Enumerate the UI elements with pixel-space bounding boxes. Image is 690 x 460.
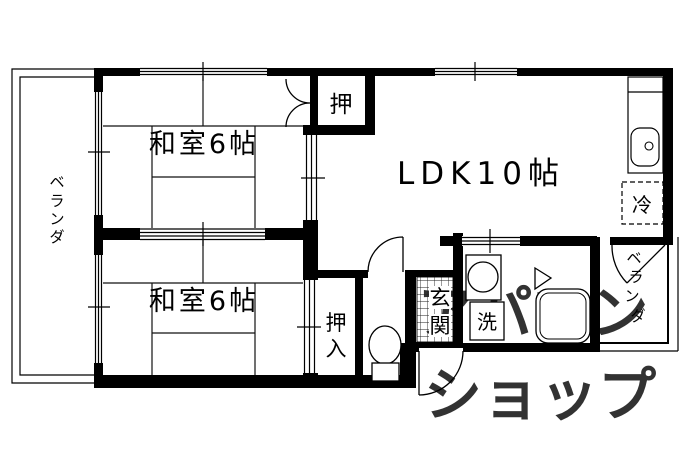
bathtub [536, 289, 590, 343]
veranda-left-label: ベ ラ ン ダ [49, 173, 64, 246]
svg-text:ラ: ラ [49, 192, 64, 210]
floorplan-page: アパマン ショップ [0, 0, 690, 460]
kitchen-counter [628, 77, 663, 173]
svg-text:関: 関 [430, 314, 451, 338]
svg-text:ラ: ラ [628, 268, 643, 286]
svg-text:ダ: ダ [49, 228, 64, 246]
svg-text:押: 押 [326, 311, 347, 335]
svg-text:ン: ン [49, 210, 64, 228]
ldk-label: LDK10帖 [397, 156, 565, 192]
toilet [369, 326, 401, 381]
fridge-label: 冷 [632, 193, 652, 217]
closet-top-label: 押 [330, 92, 353, 118]
svg-text:入: 入 [326, 337, 347, 361]
svg-text:玄: 玄 [430, 286, 451, 310]
svg-text:ベ: ベ [49, 173, 64, 191]
svg-text:ベ: ベ [626, 249, 641, 267]
room1-label: 和室6帖 [149, 129, 259, 160]
room2-label: 和室6帖 [149, 286, 259, 317]
wash-basin [466, 255, 501, 300]
laundry-label: 洗 [477, 310, 497, 334]
svg-text:ダ: ダ [630, 307, 645, 325]
svg-text:ン: ン [624, 287, 639, 305]
floorplan-canvas: アパマン ショップ [0, 0, 690, 460]
